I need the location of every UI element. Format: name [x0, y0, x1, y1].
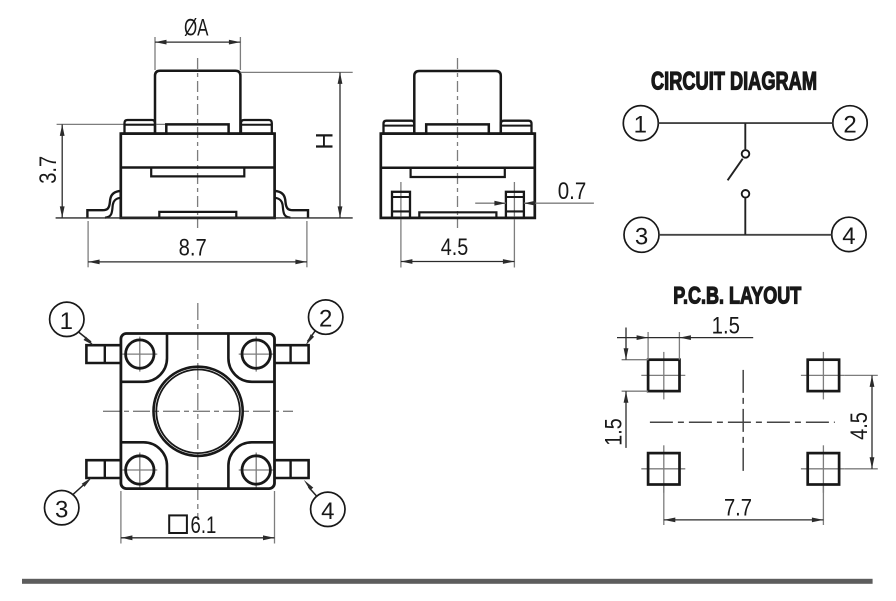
- svg-text:4: 4: [842, 223, 855, 250]
- svg-text:2: 2: [319, 306, 332, 333]
- svg-text:7.7: 7.7: [724, 495, 752, 522]
- svg-text:3: 3: [635, 223, 648, 250]
- svg-text:1: 1: [634, 112, 647, 139]
- svg-text:0.7: 0.7: [558, 178, 587, 205]
- svg-text:3.7: 3.7: [35, 156, 62, 184]
- svg-text:H: H: [312, 132, 339, 149]
- svg-text:1.5: 1.5: [601, 418, 628, 445]
- svg-text:1: 1: [60, 308, 73, 335]
- svg-text:ØA: ØA: [184, 15, 209, 42]
- svg-text:3: 3: [55, 496, 68, 523]
- svg-text:6.1: 6.1: [191, 512, 217, 539]
- svg-text:CIRCUIT DIAGRAM: CIRCUIT DIAGRAM: [651, 67, 817, 95]
- svg-text:P.C.B. LAYOUT: P.C.B. LAYOUT: [673, 282, 801, 309]
- svg-text:1.5: 1.5: [712, 312, 740, 339]
- svg-text:2: 2: [843, 112, 856, 139]
- svg-text:4.5: 4.5: [846, 412, 873, 440]
- svg-text:8.7: 8.7: [179, 234, 207, 261]
- svg-text:4: 4: [321, 498, 334, 525]
- svg-text:4.5: 4.5: [441, 234, 469, 261]
